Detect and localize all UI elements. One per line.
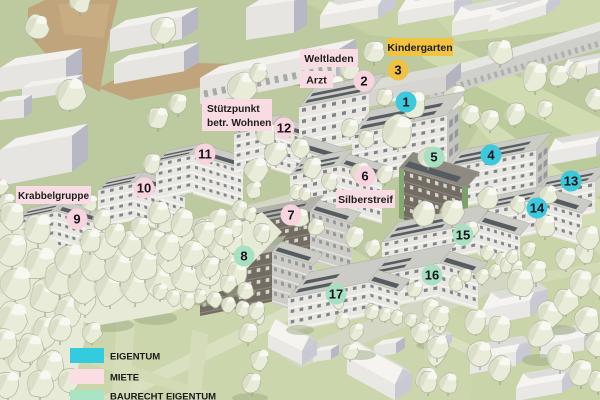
svg-text:10: 10 [137,181,151,196]
svg-text:Krabbelgruppe: Krabbelgruppe [18,191,90,202]
svg-text:8: 8 [240,249,247,264]
svg-text:15: 15 [456,228,470,243]
svg-text:7: 7 [287,208,294,223]
svg-text:4: 4 [487,148,495,163]
svg-text:BAURECHT EIGENTUM: BAURECHT EIGENTUM [110,392,216,400]
svg-text:9: 9 [73,212,80,227]
svg-text:MIETE: MIETE [110,373,139,384]
svg-text:12: 12 [277,121,291,136]
svg-text:3: 3 [394,63,401,78]
svg-text:Arzt: Arzt [306,74,327,86]
svg-text:Silberstreif: Silberstreif [338,194,393,206]
svg-text:17: 17 [329,287,343,302]
svg-text:13: 13 [564,174,578,189]
svg-text:5: 5 [430,150,437,165]
svg-text:Stützpunkt: Stützpunkt [207,104,260,115]
svg-text:2: 2 [360,74,367,89]
svg-text:14: 14 [530,201,545,216]
svg-text:11: 11 [198,147,212,162]
svg-text:EIGENTUM: EIGENTUM [110,352,160,363]
svg-text:betr. Wohnen: betr. Wohnen [207,118,271,129]
svg-text:6: 6 [361,169,368,184]
svg-text:1: 1 [402,95,409,110]
svg-text:16: 16 [425,268,439,283]
svg-text:Kindergarten: Kindergarten [387,42,452,54]
svg-text:Weltladen: Weltladen [304,53,353,65]
